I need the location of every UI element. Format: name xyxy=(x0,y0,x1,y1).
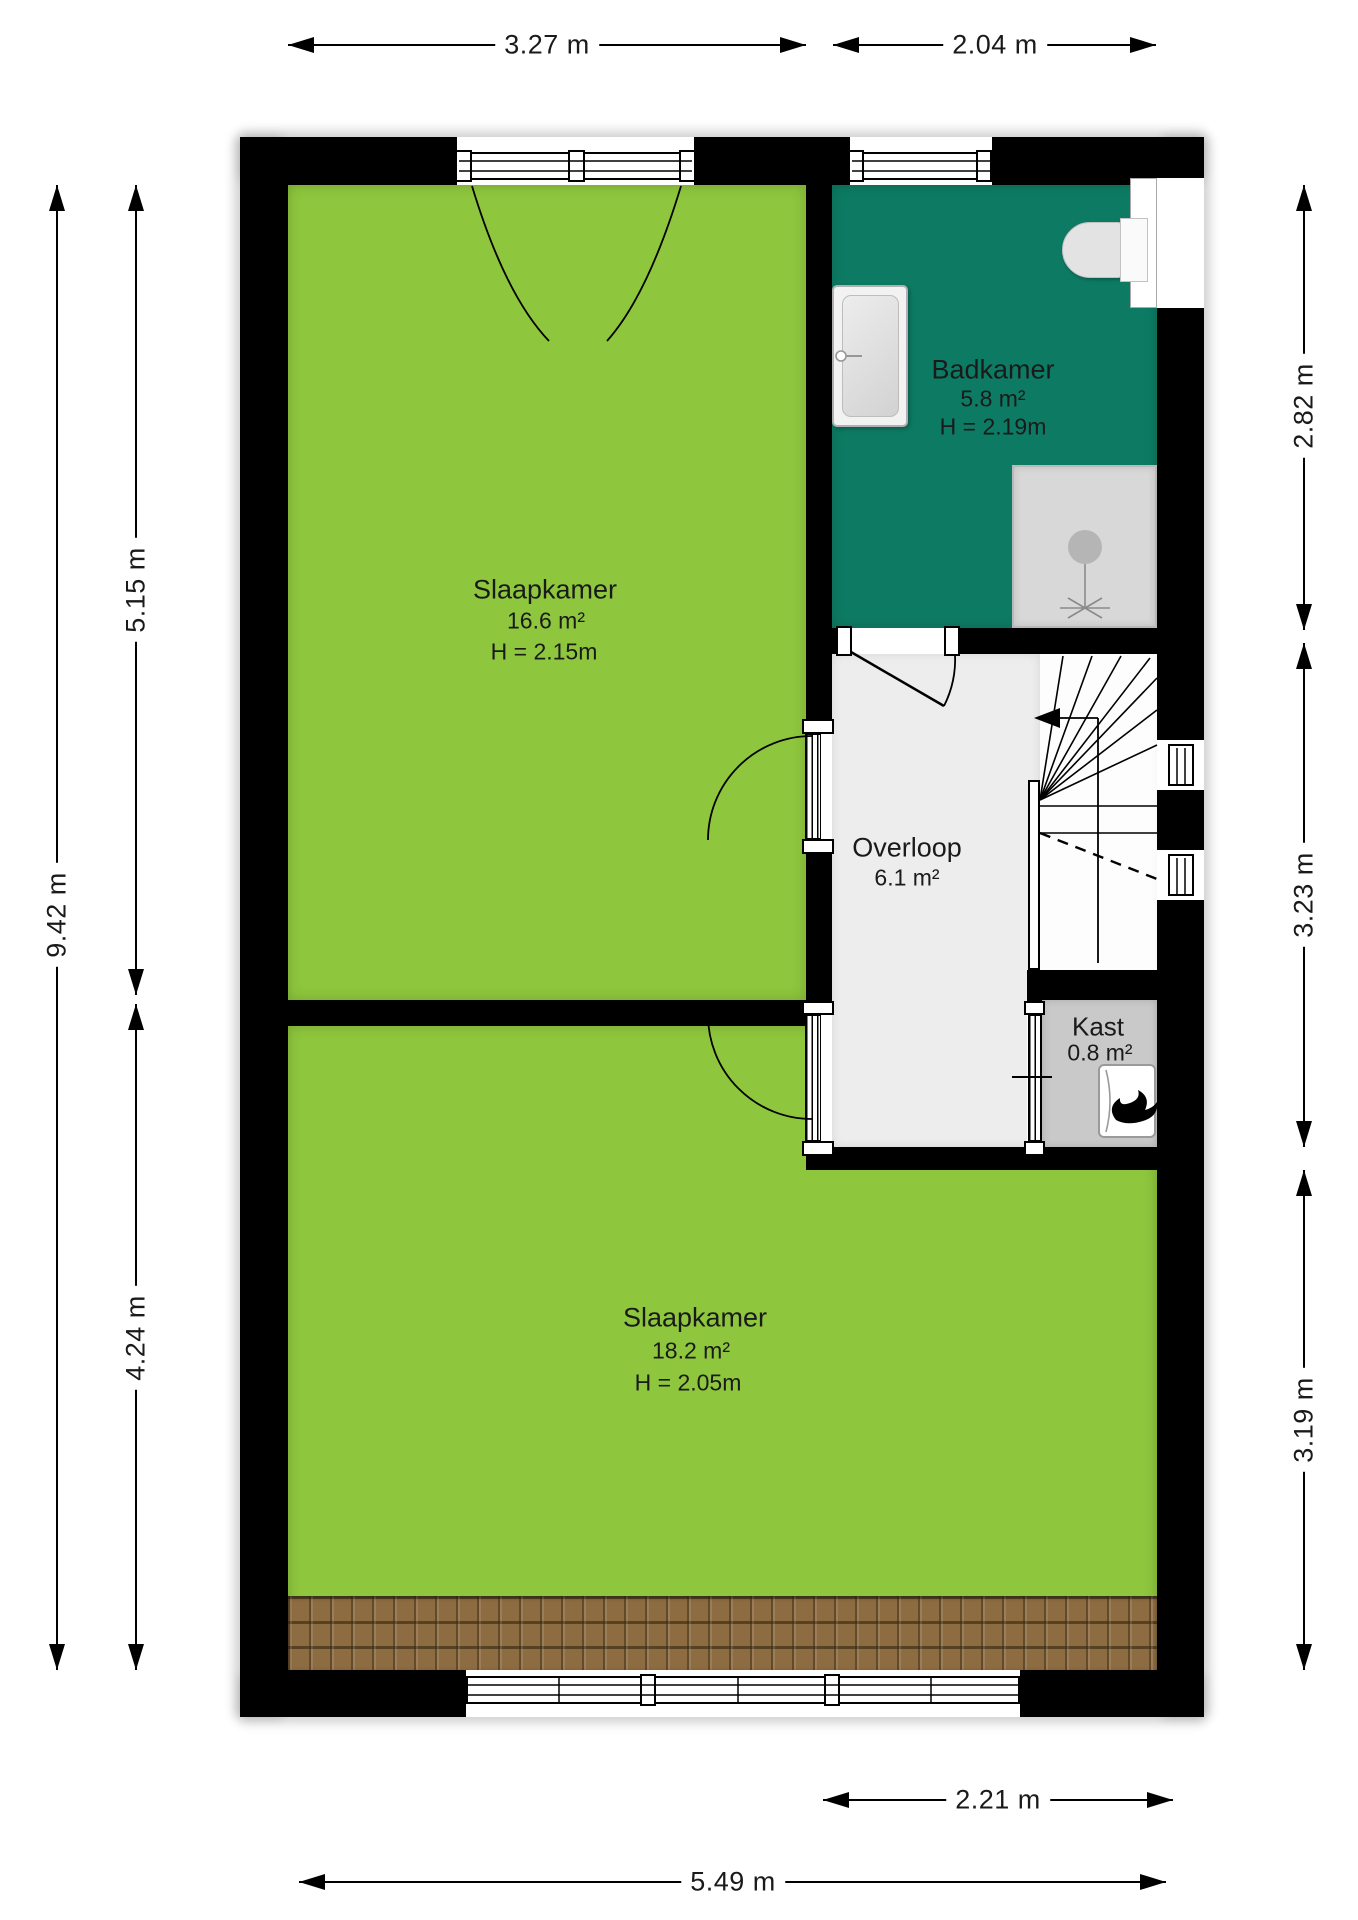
door-swing-bathroom xyxy=(944,654,955,706)
label-overloop-area: 6.1 m² xyxy=(874,865,939,892)
stairs-direction-arrow xyxy=(1034,708,1060,728)
dim-top-left: 3.27 m xyxy=(495,30,599,61)
dim-left-lower: 4.24 m xyxy=(121,1286,152,1390)
door-swing-bedroom1 xyxy=(708,736,812,840)
french-door-swings xyxy=(472,186,681,341)
staircase xyxy=(1040,656,1157,963)
label-kast-name: Kast xyxy=(1072,1012,1124,1043)
label-slaapkamer1-name: Slaapkamer xyxy=(473,575,617,606)
dim-left-outer: 9.42 m xyxy=(42,863,73,967)
label-slaapkamer1-height: H = 2.15m xyxy=(491,639,598,666)
plan-linework xyxy=(0,0,1358,1920)
label-badkamer-height: H = 2.19m xyxy=(940,414,1047,441)
boiler-door-line xyxy=(1106,1070,1110,1132)
dim-bottom-inner: 2.21 m xyxy=(946,1785,1050,1816)
label-badkamer-area: 5.8 m² xyxy=(960,386,1025,413)
shower-faucet-icon xyxy=(1060,564,1110,618)
shower-drain xyxy=(1068,530,1102,564)
label-kast-area: 0.8 m² xyxy=(1067,1040,1132,1067)
dim-bottom-outer: 5.49 m xyxy=(681,1867,785,1898)
dim-top-right: 2.04 m xyxy=(943,30,1047,61)
label-overloop-name: Overloop xyxy=(852,833,962,864)
dim-left-upper: 5.15 m xyxy=(121,538,152,642)
label-slaapkamer2-height: H = 2.05m xyxy=(635,1370,742,1397)
label-slaapkamer2-name: Slaapkamer xyxy=(623,1303,767,1334)
dim-right-lower: 3.19 m xyxy=(1289,1368,1320,1472)
bathtub-faucet-icon xyxy=(836,351,846,361)
floorplan-page: 3.27 m 2.04 m 5.15 m 9.42 m 4.24 m 2.82 … xyxy=(0,0,1358,1920)
dim-right-middle: 3.23 m xyxy=(1289,843,1320,947)
door-leaf-bathroom xyxy=(851,652,944,706)
door-swing-bedroom2 xyxy=(708,1015,812,1119)
label-slaapkamer2-area: 18.2 m² xyxy=(652,1338,730,1365)
dim-right-upper: 2.82 m xyxy=(1289,354,1320,458)
label-slaapkamer1-area: 16.6 m² xyxy=(507,608,585,635)
label-badkamer-name: Badkamer xyxy=(931,355,1054,386)
boiler-flame-icon xyxy=(1112,1090,1157,1123)
